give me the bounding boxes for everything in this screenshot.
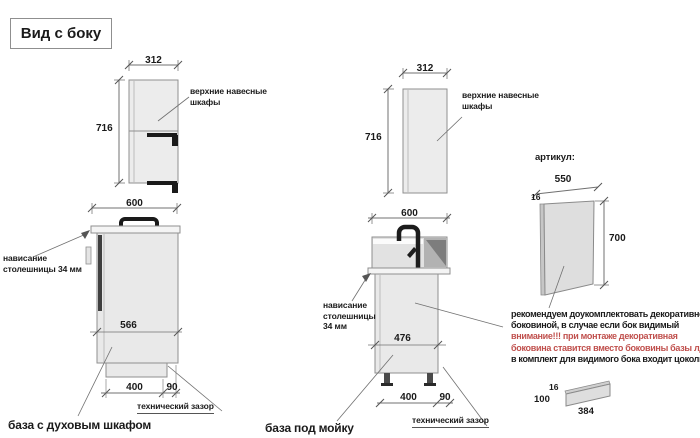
dim-left-base-inner: 566 [106, 320, 151, 331]
left-base-cabinet [86, 219, 180, 377]
dim-panel-height: 700 [609, 233, 626, 244]
dim-plinth-width: 384 [578, 406, 594, 417]
dim-panel-thickness: 16 [531, 192, 540, 202]
label-line: шкафы [190, 97, 267, 108]
label-line: шкафы [462, 101, 539, 112]
label-line: верхние навесные [190, 86, 267, 97]
label-left-overhang: нависание столешницы 34 мм [3, 253, 82, 274]
note-line: в комплект для видимого бока входит цоко… [511, 354, 700, 365]
page-title: Вид с боку [10, 18, 112, 49]
label-line: 34 мм [323, 321, 376, 332]
label-line: столешницы 34 мм [3, 264, 82, 275]
label-line: нависание [323, 300, 376, 311]
note-line: рекомендуем доукомплектовать декоративно… [511, 309, 700, 320]
label-middle-overhang: нависание столешницы 34 мм [323, 300, 376, 332]
label-line: верхние навесные [462, 90, 539, 101]
drawing-linework [0, 0, 700, 438]
dim-left-gap: 90 [163, 382, 181, 393]
label-middle-unit-name: база под мойку [265, 421, 354, 435]
dim-left-upper-width: 312 [129, 55, 178, 66]
dim-panel-width: 550 [548, 174, 578, 185]
dim-middle-plinth: 400 [380, 392, 437, 403]
dim-middle-upper-height: 716 [365, 132, 382, 143]
label-left-upper-cabinets: верхние навесные шкафы [190, 86, 267, 107]
label-line: столешницы [323, 311, 376, 322]
plinth-panel [565, 381, 610, 406]
dim-middle-base-width: 600 [372, 208, 447, 219]
dim-left-upper-height: 716 [96, 123, 113, 134]
label-middle-tech-gap: технический зазор [412, 415, 489, 428]
label-middle-upper-cabinets: верхние навесные шкафы [462, 90, 539, 111]
dim-middle-upper-width: 312 [403, 63, 447, 74]
left-upper-cabinet [129, 80, 178, 193]
page-title-text: Вид с боку [21, 25, 102, 42]
label-left-tech-gap: технический зазор [137, 401, 214, 414]
recommendation-note: рекомендуем доукомплектовать декоративно… [511, 309, 700, 365]
side-view-drawing: Вид с боку 312 716 верхние навесные шкаф… [0, 0, 700, 438]
middle-upper-cabinet [403, 89, 447, 193]
note-line-warning: внимание!!! при монтаже декоративная [511, 331, 700, 342]
label-left-unit-name: база с духовым шкафом [8, 418, 151, 432]
decor-side-panel [540, 201, 594, 295]
dim-plinth-height: 100 [534, 394, 550, 405]
note-line: боковиной, в случае если бок видимый [511, 320, 700, 331]
middle-base-cabinet [368, 227, 450, 386]
dim-left-plinth: 400 [106, 382, 163, 393]
dim-middle-gap: 90 [437, 392, 453, 403]
note-line-warning: боковина ставится вместо боковины базы л… [511, 343, 700, 354]
dim-middle-base-inner: 476 [380, 333, 425, 344]
label-articul: артикул: [535, 153, 575, 164]
dim-plinth-thickness: 16 [549, 382, 558, 392]
label-line: нависание [3, 253, 82, 264]
dim-left-base-width: 600 [92, 198, 177, 209]
